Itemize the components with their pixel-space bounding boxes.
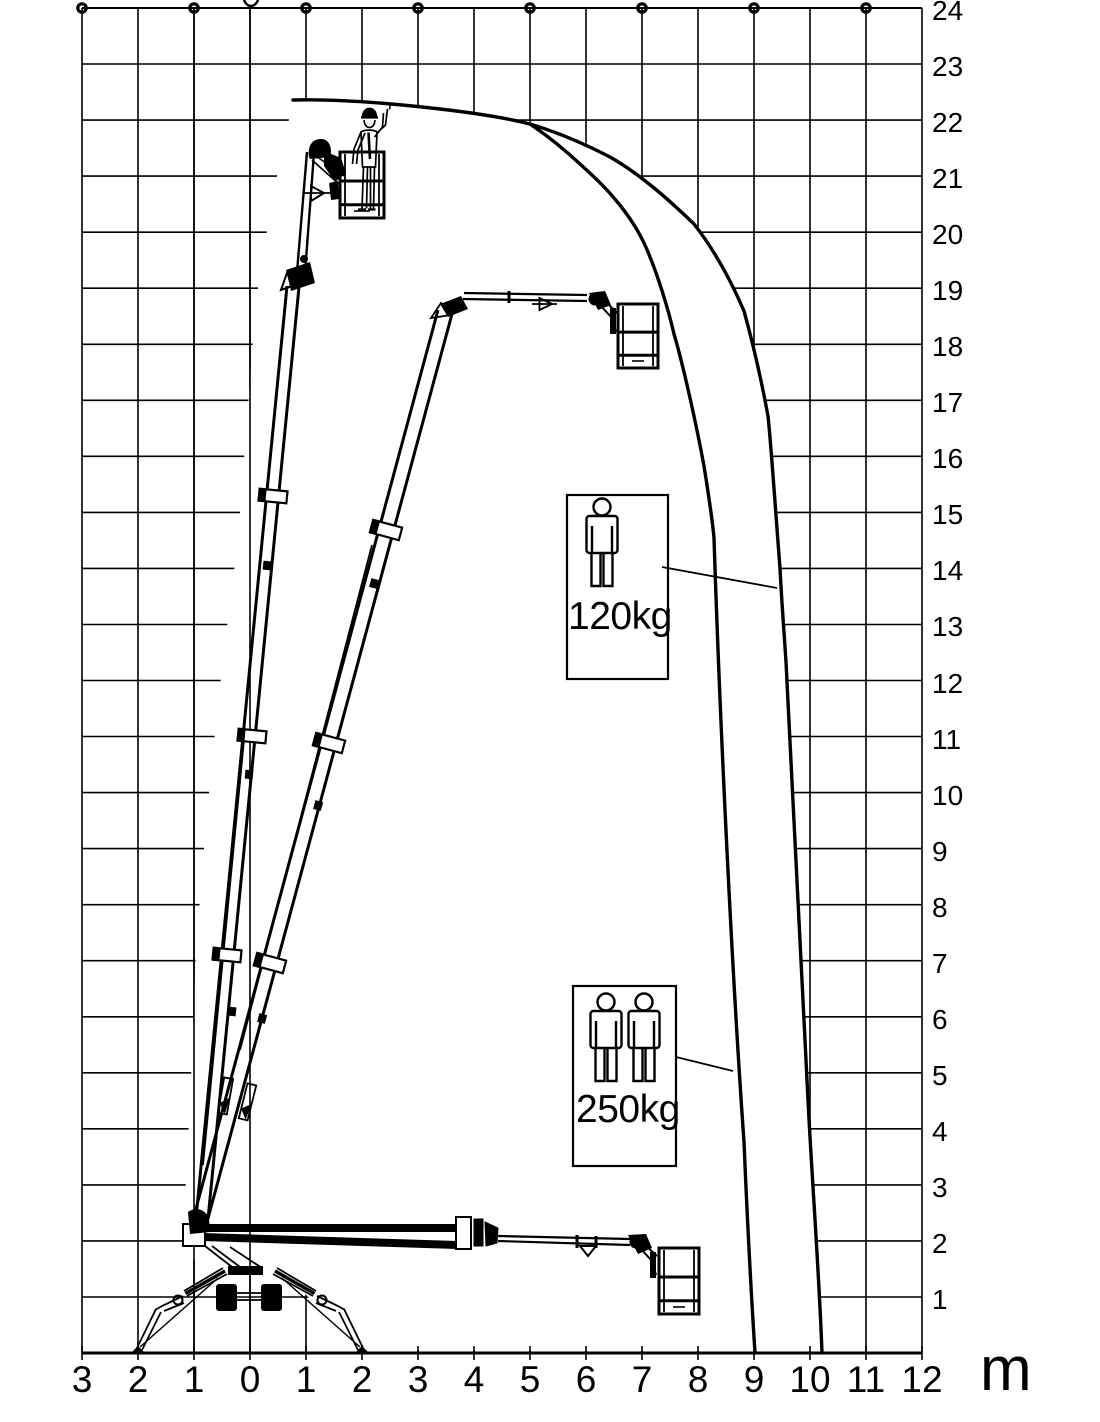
svg-text:16: 16 [932,443,963,474]
svg-text:17: 17 [932,387,963,418]
svg-text:3: 3 [408,1359,429,1400]
svg-text:1: 1 [296,1359,317,1400]
svg-text:24: 24 [932,0,963,26]
svg-text:2: 2 [128,1359,149,1400]
svg-text:1: 1 [184,1359,205,1400]
svg-text:10: 10 [789,1359,830,1400]
svg-text:10: 10 [932,780,963,811]
svg-text:6: 6 [932,1004,948,1035]
svg-text:14: 14 [932,555,963,586]
svg-text:120kg: 120kg [568,595,672,638]
svg-text:18: 18 [932,331,963,362]
svg-text:8: 8 [932,892,948,923]
svg-text:5: 5 [520,1359,541,1400]
svg-text:3: 3 [932,1172,948,1203]
svg-text:250kg: 250kg [576,1088,680,1131]
svg-text:7: 7 [932,948,948,979]
svg-text:4: 4 [464,1359,485,1400]
svg-text:15: 15 [932,499,963,530]
svg-text:5: 5 [932,1060,948,1091]
svg-text:4: 4 [932,1116,948,1147]
svg-text:20: 20 [932,219,963,250]
svg-text:2: 2 [352,1359,373,1400]
svg-text:23: 23 [932,51,963,82]
svg-text:m: m [980,1335,1032,1404]
svg-text:6: 6 [576,1359,597,1400]
svg-text:2: 2 [932,1228,948,1259]
svg-text:9: 9 [744,1359,765,1400]
svg-text:12: 12 [932,668,963,699]
svg-text:0: 0 [240,1359,261,1400]
svg-text:21: 21 [932,163,963,194]
svg-text:1: 1 [932,1284,948,1315]
svg-text:13: 13 [932,611,963,642]
svg-text:11: 11 [847,1359,885,1400]
svg-text:7: 7 [632,1359,653,1400]
svg-text:3: 3 [72,1359,93,1400]
svg-text:11: 11 [932,724,961,755]
svg-text:19: 19 [932,275,963,306]
svg-text:22: 22 [932,107,963,138]
svg-text:9: 9 [932,836,948,867]
svg-text:12: 12 [901,1359,942,1400]
svg-text:8: 8 [688,1359,709,1400]
